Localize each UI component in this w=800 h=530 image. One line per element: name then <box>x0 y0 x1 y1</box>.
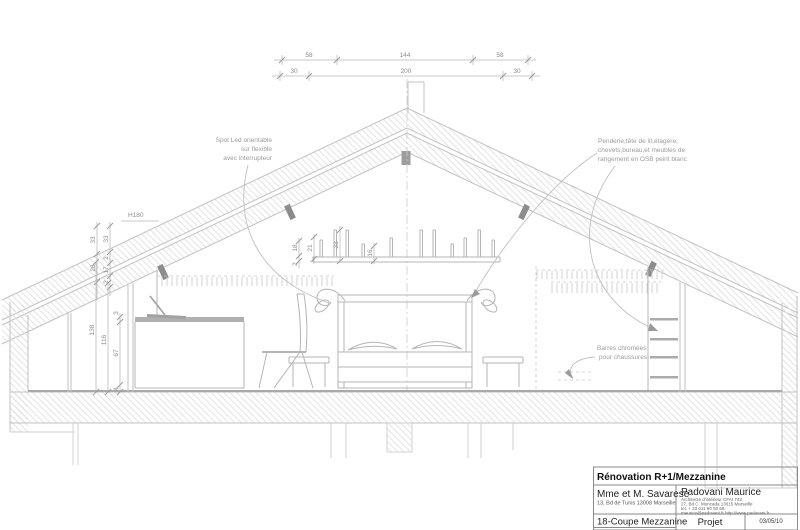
dim-shelf-18: 18 <box>292 244 299 252</box>
dim-top1-left: 58 <box>305 52 313 59</box>
dim-height-116: 116 <box>101 334 108 345</box>
dim-roof-17: 17 <box>103 266 110 274</box>
storage-text-1: Penderie,tête de lit,étagère, <box>598 138 678 145</box>
desk-top <box>135 317 244 322</box>
phase-label: Projet <box>698 517 723 528</box>
floor-slab <box>10 391 797 423</box>
dim-shelf-33: 33 <box>333 241 340 249</box>
client-name: Mme et M. Savarese <box>597 489 690 500</box>
hanger-row-right-lower <box>551 283 661 293</box>
dim-shelf-16: 16 <box>367 249 374 257</box>
dim-top2-middle: 200 <box>401 68 412 75</box>
dim-height-138: 138 <box>89 324 96 335</box>
hanger-row-left <box>158 277 334 286</box>
spot-led-text-1: Spot Led orientable <box>216 137 273 144</box>
wardrobe-left <box>158 276 334 286</box>
dim-shelf-21: 21 <box>307 244 314 252</box>
project-title: Rénovation R+1/Mezzanine <box>597 472 726 483</box>
ridge-beam <box>402 151 411 165</box>
spot-led-text-2: sur flexible <box>241 146 272 153</box>
storage-text-2: chevets,bureau,et meubles de <box>598 147 685 154</box>
architect-line4: maurice@padovani.fr http://www.padovani.… <box>681 511 770 516</box>
dim-top2-right: 30 <box>513 68 521 75</box>
dim-roof-2a: 2 <box>103 256 110 260</box>
architectural-section-drawing: 58 144 58 30 200 30 33 28 33 2 17 2 138 … <box>0 0 800 530</box>
hanger-row-right-upper <box>536 271 664 279</box>
dim-top2-left: 30 <box>290 68 298 75</box>
storage-text-3: rangement en OSB peint blanc <box>598 156 688 163</box>
dim-roof-33b: 33 <box>103 235 110 243</box>
dim-shelf-2: 2 <box>292 262 299 266</box>
dim-top1-right: 58 <box>496 52 504 59</box>
h180-label: H180 <box>128 212 144 219</box>
dim-top1-middle: 144 <box>400 52 411 59</box>
dim-roof-33a: 33 <box>90 236 97 244</box>
spot-led-text-3: avec interrupteur <box>223 155 273 162</box>
dim-desk-67: 67 <box>113 349 120 357</box>
client-address: 13, Bd de Tunis 13008 Marseille <box>597 501 676 507</box>
sheet-name: 18-Coupe Mezzanine <box>597 517 687 528</box>
shoe-bars-text-1: Barres chromées <box>597 345 647 352</box>
shoe-bars-text-2: pour chaussures <box>599 354 648 361</box>
dim-base-4: 4 <box>113 387 120 391</box>
dim-desk-top-3: 3 <box>113 311 120 315</box>
date-label: 03/05/10 <box>759 519 783 525</box>
drawing-canvas: 58 144 58 30 200 30 33 28 33 2 17 2 138 … <box>0 0 800 530</box>
